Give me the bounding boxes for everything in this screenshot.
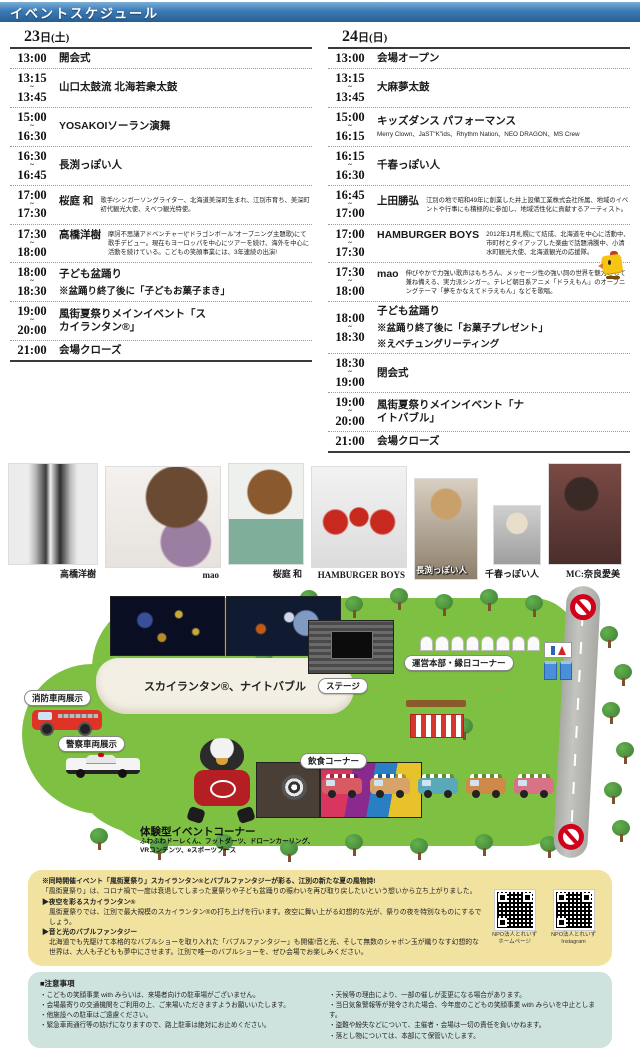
experience-corner-items: ふわふわドーレくん、フットダーツ、ドローンカーリング、 VRコンテンツ、eスポー…	[140, 837, 314, 855]
police-vehicle-label: 警察車両展示	[58, 736, 125, 752]
hq-enni-label: 運営本部・縁日コーナー	[404, 655, 514, 671]
tree-icon	[602, 702, 620, 724]
stage-label: ステージ	[318, 678, 368, 694]
schedule-row: 13:15 ~ 13:45 山口太鼓流 北海若衆太鼓	[10, 68, 312, 107]
notice-line: 北海道でも先駆けて本格的なバブルショーを取り入れた「バブルファンタジー」も開催!…	[42, 938, 484, 958]
notice-line: ▶夜空を彩るスカイランタン®	[42, 898, 484, 908]
schedule-row: 17:30 ~ 18:00 mao 伸びやかで力強い歌声はもちろん、メッセージ性…	[328, 262, 630, 301]
performer: MC:奈良愛美	[548, 463, 622, 580]
schedule-row: 18:00 ~ 18:30 子ども盆踊り ※盆踊り終了後に「お菓子プレゼント」 …	[328, 301, 630, 353]
time-slot: 17:00 ~ 17:30	[328, 228, 372, 260]
time-slot: 19:00 ~ 20:00	[328, 396, 372, 428]
time-slot: 16:45 ~ 17:00	[328, 189, 372, 221]
schedule-row: 13:00 会場オープン	[328, 49, 630, 68]
tree-icon	[410, 838, 428, 860]
festival-notice-text: ※同時開催イベント「風街夏祭り」スカイランタン®とバブルファンタジーが彩る、江別…	[42, 877, 484, 959]
event-title: 会場オープン	[377, 52, 439, 65]
dole-kun-inflatable-icon	[186, 738, 258, 822]
bon-odori-yagura-icon	[400, 690, 472, 742]
schedule-row: 15:00 ~ 16:15 キッズダンス パフォーマンス Merry Clown…	[328, 107, 630, 146]
tree-icon	[612, 820, 630, 842]
schedule-row: 18:00 ~ 18:30 子ども盆踊り ※盆踊り終了後に「子どもお菓子まき」	[10, 262, 312, 301]
time-slot: 17:00 ~ 17:30	[10, 189, 54, 221]
food-truck-icon	[418, 772, 458, 798]
caution-item: ・落とし物については、本部にて保管いたします。	[329, 1032, 600, 1042]
event-description: 歌手/シンガーソングライター、北海道美深町生まれ、江別市育ち、美深町初代観光大使…	[100, 195, 312, 214]
performer-name: mao	[203, 568, 222, 580]
performer-name: 長渕っぽい人	[416, 562, 469, 576]
event-title: 開会式	[59, 52, 91, 65]
event-title: 桜庭 和	[59, 195, 93, 208]
event-description: 摩訶不思議アドベンチャー!(“ドラゴンボール”オープニング主題歌)にて歌手デビュ…	[108, 229, 312, 257]
event-title: 高橋洋樹	[59, 229, 101, 242]
event-title: 会場クローズ	[59, 344, 121, 357]
food-truck-icon	[370, 772, 410, 798]
time-slot: 21:00	[328, 435, 372, 448]
schedule-row: 17:30 ~ 18:00 高橋洋樹 摩訶不思議アドベンチャー!(“ドラゴンボー…	[10, 224, 312, 263]
performer: HAMBURGER BOYS	[311, 466, 407, 580]
event-title: HAMBURGER BOYS	[377, 229, 479, 242]
tree-icon	[480, 589, 498, 611]
performer-name: 高橋洋樹	[60, 565, 98, 580]
schedule-row: 16:15 ~ 16:30 千春っぽい人	[328, 146, 630, 185]
event-title: キッズダンス パフォーマンス	[377, 115, 516, 128]
event-note: ※えべチュングリーティング	[377, 336, 630, 350]
caution-list-right: ・天候等の理由により、一部の催しが変更になる場合があります。 ・当日気象警報等が…	[329, 991, 600, 1042]
event-title: 会場クローズ	[377, 435, 439, 448]
page-title: イベントスケジュール	[0, 3, 159, 22]
performer-name: 千春っぽい人	[485, 565, 541, 580]
event-title: 長渕っぽい人	[59, 159, 122, 172]
performer: 長渕っぽい人	[414, 478, 478, 580]
performer: 千春っぽい人	[485, 505, 541, 580]
caution-item: ・会場最寄りの交通機関をご利用の上、ご来場いただきますようお願いいたします。	[40, 1001, 311, 1011]
event-note: ※盆踊り終了後に「お菓子プレゼント」	[377, 320, 630, 334]
event-title: 子ども盆踊り	[377, 305, 440, 318]
date-header-sat: 23日(土)	[10, 26, 312, 49]
schedule-column-sat: 23日(土) 13:00 開会式	[10, 26, 312, 453]
header-bar: イベントスケジュール	[0, 2, 640, 22]
notice-line: ※同時開催イベント「風街夏祭り」スカイランタン®とバブルファンタジーが彩る、江別…	[42, 877, 484, 887]
caution-item: ・当日気象警報等が発令された場合、今年度のこどもの笑顔事業 with みらいを中…	[329, 1001, 600, 1021]
schedule-rows-sat: 13:00 開会式	[10, 49, 312, 362]
event-title: 上田勝弘	[377, 195, 419, 208]
tree-icon	[616, 742, 634, 764]
schedule-row: 18:30 ~ 19:00 閉会式	[328, 353, 630, 392]
caution-box: ■注意事項 ・こどもの笑顔事業 with みらいは、来場者向けの駐車場がございま…	[28, 972, 612, 1048]
time-slot: 13:15 ~ 13:45	[328, 72, 372, 104]
time-slot: 13:15 ~ 13:45	[10, 72, 54, 104]
tree-icon	[345, 834, 363, 856]
event-title: mao	[377, 268, 399, 281]
qr-code-icon	[495, 890, 535, 930]
caution-list-left: ・こどもの笑顔事業 with みらいは、来場者向けの駐車場がございません。 ・会…	[40, 991, 311, 1042]
tree-icon	[435, 594, 453, 616]
sky-lantern-photo	[110, 596, 225, 656]
performer: mao	[105, 466, 221, 580]
performer-photo	[105, 466, 221, 568]
time-slot: 16:15 ~ 16:30	[328, 150, 372, 182]
schedule-row: 19:00 ~ 20:00 風街夏祭りメインイベント「ナイトバブル」	[328, 392, 630, 431]
tree-icon	[345, 596, 363, 618]
toilet-icon	[544, 642, 572, 680]
event-title: 閉会式	[377, 367, 409, 380]
schedule-row: 15:00 ~ 16:30 YOSAKOIソーラン演舞	[10, 107, 312, 146]
tree-icon	[475, 834, 493, 856]
time-slot: 19:00 ~ 20:00	[10, 305, 54, 337]
notice-line: 風街夏祭りでは、江別で最大規模のスカイランタン®の打ち上げを行います。夜空に舞い…	[42, 908, 484, 928]
tree-icon	[600, 626, 618, 648]
schedule-row: 21:00 会場クローズ	[328, 431, 630, 451]
food-truck-icon	[466, 772, 506, 798]
schedule-row: 13:00 開会式	[10, 49, 312, 68]
date-header-sun: 24日(日)	[328, 26, 630, 49]
time-slot: 17:30 ~ 18:00	[10, 228, 54, 260]
event-subtitle: Merry Clown、JaST"K"ids、Rhythm Nation、NEO…	[377, 129, 630, 138]
schedule: 23日(土) 13:00 開会式	[0, 22, 640, 453]
ebechun-mascot-icon	[600, 251, 626, 279]
event-title: 風街夏祭りメインイベント「ナイトバブル」	[377, 399, 527, 425]
police-car-icon	[66, 752, 142, 778]
time-slot: 18:00 ~ 18:30	[10, 266, 54, 298]
event-title: 子ども盆踊り	[59, 268, 122, 281]
caution-item: ・他施設への駐車はご遠慮ください。	[40, 1011, 311, 1021]
performer-name: 桜庭 和	[273, 565, 304, 580]
festival-notice-box: ※同時開催イベント「風街夏祭り」スカイランタン®とバブルファンタジーが彩る、江別…	[28, 870, 612, 966]
event-description: 伸びやかで力強い歌声はもちろん、メッセージ性の強い詞の世界を魅力として兼ね備える…	[406, 268, 630, 296]
schedule-row: 16:45 ~ 17:00 上田勝弘 江別の地で昭和49年に創業した井上設備工業…	[328, 185, 630, 224]
schedule-column-sun: 24日(日) 13:00 会場オープン	[328, 26, 630, 453]
time-slot: 15:00 ~ 16:15	[328, 111, 372, 143]
schedule-row: 21:00 会場クローズ	[10, 340, 312, 360]
performer-photo	[8, 463, 98, 565]
fire-vehicle-label: 消防車両展示	[24, 690, 91, 706]
time-slot: 18:30 ~ 19:00	[328, 357, 372, 389]
caution-item: ・盗難や紛失などについて、主催者・会場は一切の責任を負いかねます。	[329, 1021, 600, 1031]
tent-row-icon	[420, 636, 540, 651]
performer-photo	[493, 505, 541, 565]
schedule-row: 13:15 ~ 13:45 大麻夢太鼓	[328, 68, 630, 107]
event-title: 山口太鼓流 北海若衆太鼓	[59, 81, 177, 94]
performer-photo	[228, 463, 304, 565]
qr-homepage: NPO法人とれいずホームページ	[492, 890, 537, 946]
no-entry-sign-icon	[569, 594, 596, 621]
event-note: ※盆踊り終了後に「子どもお菓子まき」	[59, 283, 312, 297]
tree-icon	[604, 782, 622, 804]
food-truck-icon	[322, 772, 362, 798]
notice-line: ▶音と光のバブルファンタジー	[42, 928, 484, 938]
event-description: 江別の地で昭和49年に創業した井上設備工業株式会社所属、地域のイベントや行事にも…	[426, 195, 630, 214]
schedule-row: 16:30 ~ 16:45 長渕っぽい人	[10, 146, 312, 185]
event-title: 千春っぽい人	[377, 159, 440, 172]
qr-instagram: NPO法人とれいずInstagram	[551, 890, 596, 946]
qr-codes: NPO法人とれいずホームページ NPO法人とれいずInstagram	[492, 877, 602, 959]
lantern-zone-label: スカイランタン®、ナイトバブル	[144, 678, 306, 694]
time-slot: 15:00 ~ 16:30	[10, 111, 54, 143]
event-title: YOSAKOIソーラン演舞	[59, 120, 170, 133]
road-centerline	[570, 614, 583, 830]
event-title: 風街夏祭りメインイベント「スカイランタン®」	[59, 308, 209, 334]
performer-name: MC:奈良愛美	[566, 565, 622, 580]
no-entry-sign-icon	[557, 823, 584, 850]
fire-truck-icon	[32, 704, 104, 736]
performer-photo	[311, 466, 407, 568]
performer: 高橋洋樹	[8, 463, 98, 580]
food-truck-icon	[514, 772, 554, 798]
tree-icon	[614, 664, 632, 686]
performer-strip: 高橋洋樹 mao 桜庭 和 HAMBURGER BOYS 長渕っぽい人 千春っぽ…	[0, 453, 640, 582]
schedule-row: 17:00 ~ 17:30 桜庭 和 歌手/シンガーソングライター、北海道美深町…	[10, 185, 312, 224]
qr-code-icon	[554, 890, 594, 930]
time-slot: 16:30 ~ 16:45	[10, 150, 54, 182]
tree-icon	[90, 828, 108, 850]
caution-item: ・天候等の理由により、一部の催しが変更になる場合があります。	[329, 991, 600, 1001]
food-corner-label: 飲食コーナー	[300, 753, 367, 769]
schedule-row: 19:00 ~ 20:00 風街夏祭りメインイベント「スカイランタン®」	[10, 301, 312, 340]
venue-map: スカイランタン®、ナイトバブル 消防車両展示 警察車両展示 体験型イベントコーナ…	[0, 586, 640, 862]
schedule-rows-sun: 13:00 会場オープン	[328, 49, 630, 453]
time-slot: 18:00 ~ 18:30	[328, 312, 372, 344]
caution-item: ・こどもの笑顔事業 with みらいは、来場者向けの駐車場がございません。	[40, 991, 311, 1001]
time-slot: 17:30 ~ 18:00	[328, 266, 372, 298]
time-slot: 13:00	[10, 52, 54, 65]
performer-photo	[548, 463, 622, 565]
performer-name: HAMBURGER BOYS	[318, 568, 407, 580]
event-title: 大麻夢太鼓	[377, 81, 430, 94]
performer: 桜庭 和	[228, 463, 304, 580]
caution-title: ■注意事項	[40, 978, 600, 989]
food-truck-row	[322, 772, 554, 798]
time-slot: 13:00	[328, 52, 372, 65]
schedule-row: 17:00 ~ 17:30 HAMBURGER BOYS 2012年1月札幌にて…	[328, 224, 630, 263]
caution-item: ・緊急車両通行等の妨げになりますので、路上駐車は絶対にお止めください。	[40, 1021, 311, 1031]
notice-line: 「風街夏祭り」は、コロナ禍で一度は衰退してしまった夏祭りや子ども盆踊りの賑わいを…	[42, 887, 484, 897]
time-slot: 21:00	[10, 344, 54, 357]
tree-icon	[525, 595, 543, 617]
stage-icon	[308, 620, 394, 674]
tree-icon	[390, 588, 408, 610]
foot-darts-photo	[256, 762, 320, 818]
